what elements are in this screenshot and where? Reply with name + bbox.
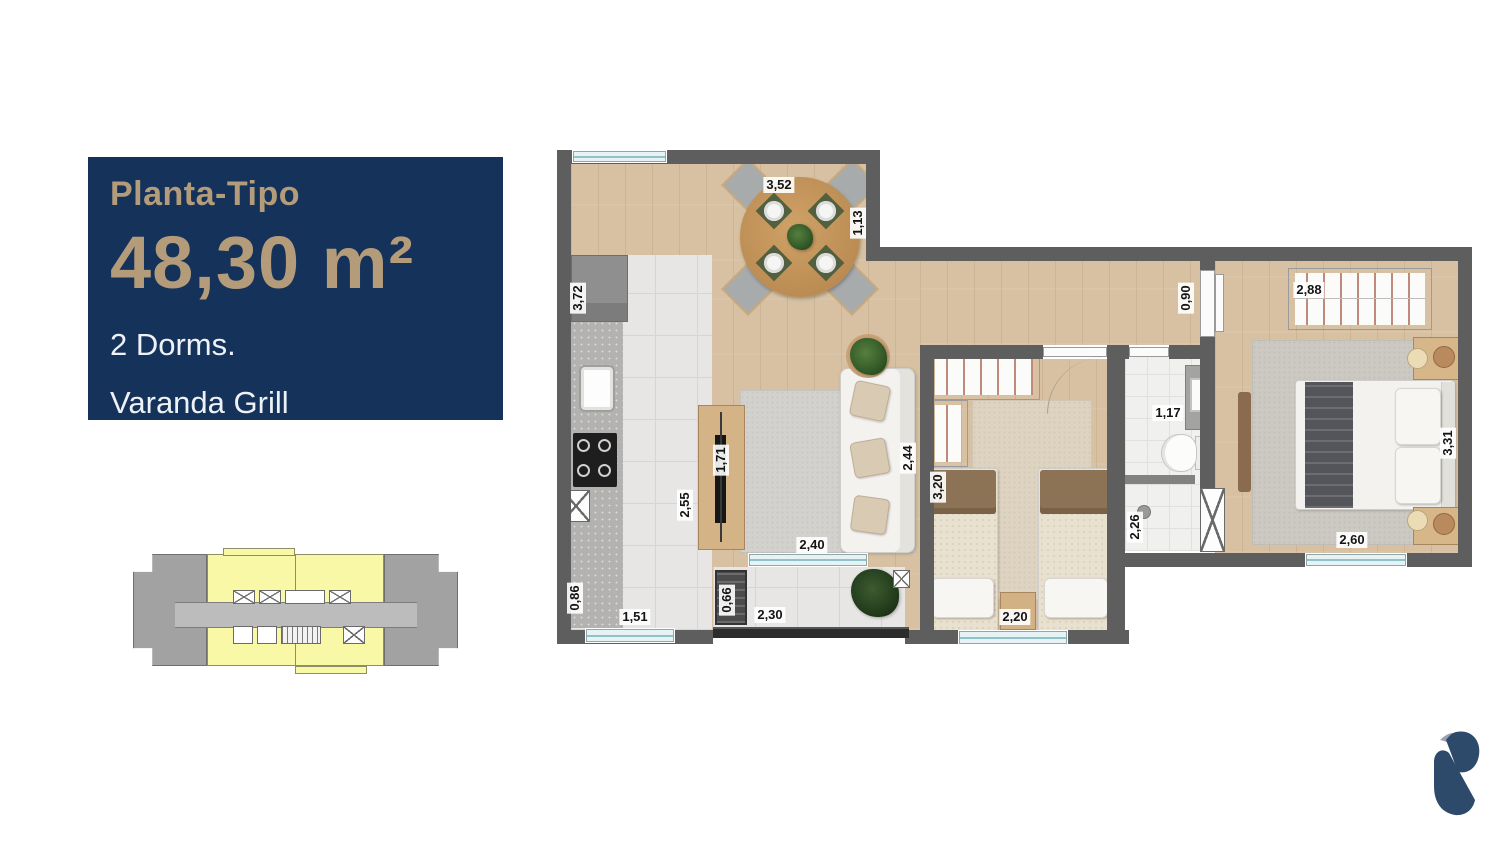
keyplan-elevator [259,590,281,604]
wall [866,150,880,261]
dim-kitchen-entry: 0,86 [567,582,583,613]
kitchen-sink [579,365,615,412]
dim-dining-width: 3,52 [763,177,794,193]
master-window [1305,553,1407,567]
dim-bedroom2-width: 2,20 [999,609,1030,625]
dim-hall-width: 0,90 [1178,282,1194,313]
burner [598,464,611,477]
brand-logo-icon [1424,726,1484,816]
burner [577,439,590,452]
dining-window [572,150,667,163]
keyplan-elevator [233,590,255,604]
master-door [1200,270,1215,337]
dim-bath-depth: 2,26 [1127,511,1143,542]
nightstand-lamp [1407,510,1428,531]
plate [764,201,784,221]
living-window [748,553,868,567]
plan-dorms: 2 Dorms. [110,327,503,363]
bed-pillow [1395,447,1441,504]
living-plant [850,338,887,375]
keyplan-shaft [343,626,365,644]
plan-feature: Varanda Grill [110,385,503,421]
key-plan [133,546,458,678]
bed-pillow [1395,388,1441,445]
single-bed-blanket [1040,470,1110,514]
sofa-pillow [850,495,891,536]
varanda-railing [713,627,909,638]
nightstand-decor [1433,513,1455,535]
keyplan-core-box [257,626,277,644]
burner [598,439,611,452]
master-sideboard [1238,392,1251,492]
tv-soundbar [720,412,722,542]
bedroom2-wardrobe-side [928,400,968,467]
table-centerpiece [787,224,813,250]
wall [1169,345,1200,359]
floor-plan: 3,52 1,13 3,72 2,55 0,86 1,51 1,71 2,44 … [557,150,1472,644]
dim-master-width: 2,60 [1336,532,1367,548]
keyplan-stairs [281,626,321,644]
kitchen-window [585,628,675,643]
plate [816,253,836,273]
single-bed-pillow [1044,578,1108,618]
dim-master-wardrobe: 2,88 [1293,282,1324,298]
dim-kitchen-height: 3,72 [570,282,586,313]
wall [1458,247,1472,567]
sofa-pillow [849,437,891,479]
dim-living-depth: 2,44 [900,442,916,473]
keyplan-elevator [329,590,351,604]
wall [920,345,1043,359]
keyplan-core-box [233,626,253,644]
brand-logo [1424,726,1484,816]
wall [1107,345,1125,644]
keyplan-core-box [285,590,325,604]
dim-master-depth: 3,31 [1440,427,1456,458]
dim-bath-width: 1,17 [1152,405,1183,421]
bathroom-door [1129,347,1169,357]
info-panel: Planta-Tipo 48,30 m² 2 Dorms. Varanda Gr… [88,157,503,420]
wall [866,247,1472,261]
varanda-shaft [893,570,910,588]
keyplan-highlight-tab-bottom [295,666,367,674]
toilet-bowl [1161,434,1197,472]
master-shaft [1200,488,1225,552]
plan-title: Planta-Tipo [110,175,503,214]
bedroom2-window [958,630,1068,645]
dim-kitchen-window: 1,51 [619,609,650,625]
hall-floor [920,261,1200,345]
nightstand-lamp [1407,348,1428,369]
wall [1122,553,1202,567]
nightstand-decor [1433,346,1455,368]
dim-kitchen-length: 2,55 [677,489,693,520]
dim-varanda-width: 2,30 [754,607,785,623]
sofa-pillow [849,380,892,423]
page: Planta-Tipo 48,30 m² 2 Dorms. Varanda Gr… [0,0,1500,844]
bed-runner [1305,382,1353,508]
dim-tv-panel: 1,71 [713,444,729,475]
master-wardrobe-divider [1294,298,1426,299]
plan-area: 48,30 m² [110,220,503,305]
dim-dining-depth: 1,13 [850,207,866,238]
burner [577,464,590,477]
wall [557,150,571,644]
dim-bedroom2-depth: 3,20 [930,471,946,502]
bedroom2-wardrobe [928,352,1040,400]
dim-living-width: 2,40 [796,537,827,553]
single-bed-pillow [931,578,994,618]
master-door-leaf [1215,274,1224,332]
keyplan-corridor [175,602,417,628]
keyplan-highlight-tab-top [223,548,295,556]
bedroom2-door [1043,347,1107,357]
shower-divider [1125,475,1195,484]
plate [764,253,784,273]
master-wardrobe [1288,268,1432,330]
plate [816,201,836,221]
dim-grill-width: 0,66 [719,584,735,615]
